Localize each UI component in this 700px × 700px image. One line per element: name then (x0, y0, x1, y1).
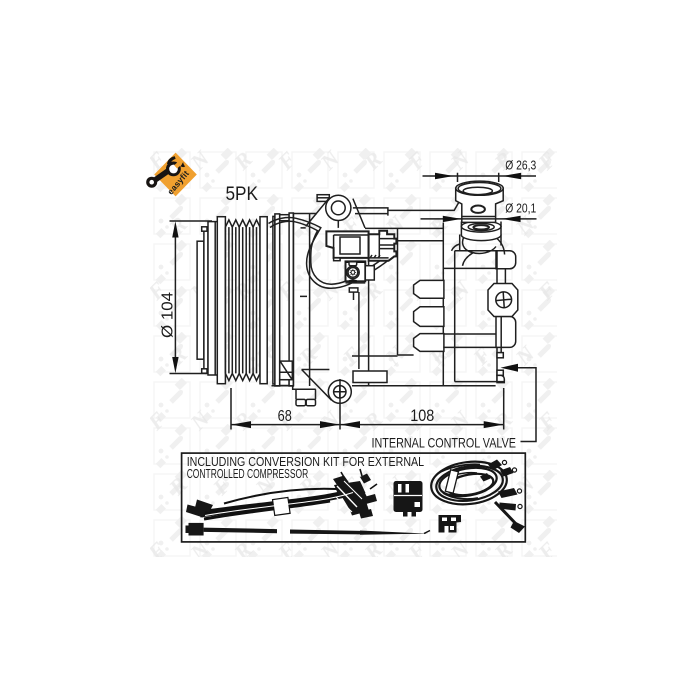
svg-text:Ø 104: Ø 104 (160, 292, 177, 338)
svg-text:68: 68 (278, 408, 292, 425)
svg-text:INTERNAL CONTROL VALVE: INTERNAL CONTROL VALVE (372, 435, 517, 450)
svg-text:CONTROLLED COMPRESSOR: CONTROLLED COMPRESSOR (187, 466, 309, 481)
svg-text:108: 108 (410, 407, 434, 425)
svg-text:Ø 20,1: Ø 20,1 (505, 201, 536, 216)
svg-text:5PK: 5PK (226, 183, 259, 205)
svg-text:Ø 26,3: Ø 26,3 (505, 158, 536, 173)
